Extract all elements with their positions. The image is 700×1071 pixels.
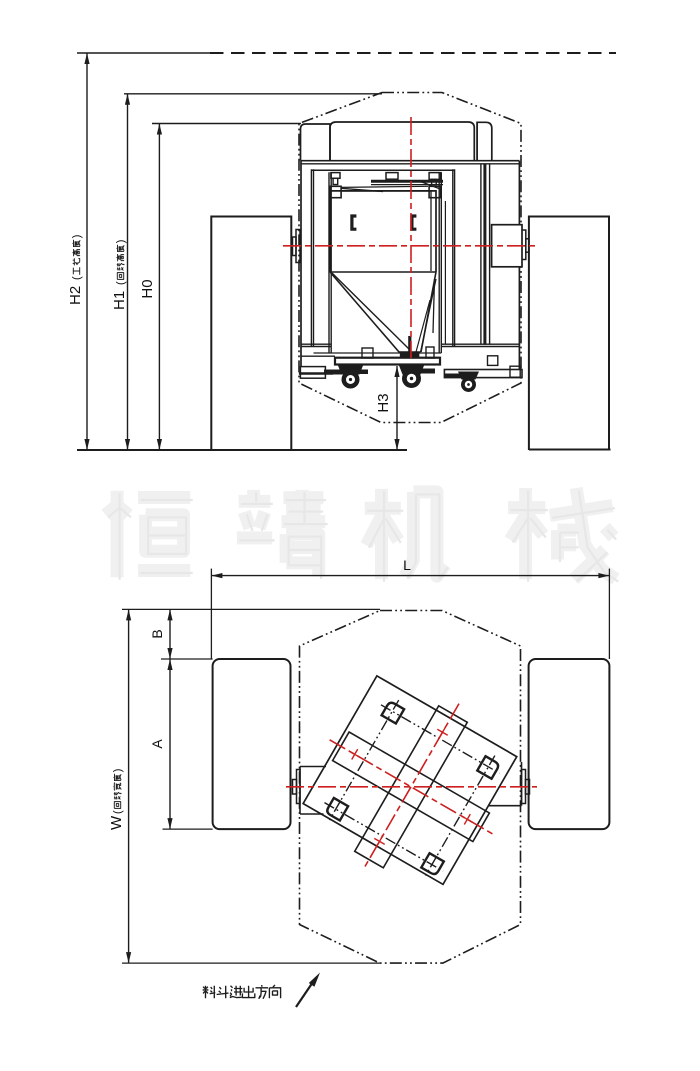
svg-text:): ) bbox=[71, 235, 83, 239]
svg-text:H3: H3 bbox=[375, 393, 392, 412]
svg-text:A: A bbox=[149, 739, 165, 749]
svg-text:): ) bbox=[115, 240, 127, 244]
svg-text:H0: H0 bbox=[139, 279, 156, 298]
svg-text:): ) bbox=[112, 769, 124, 773]
svg-text:L: L bbox=[403, 557, 411, 573]
svg-text:(: ( bbox=[115, 281, 127, 285]
svg-text:H2: H2 bbox=[67, 286, 84, 305]
svg-text:W: W bbox=[108, 815, 125, 830]
svg-text:(: ( bbox=[71, 276, 83, 280]
svg-text:(: ( bbox=[112, 810, 124, 814]
svg-text:B: B bbox=[149, 629, 165, 638]
svg-text:H1: H1 bbox=[111, 291, 128, 310]
